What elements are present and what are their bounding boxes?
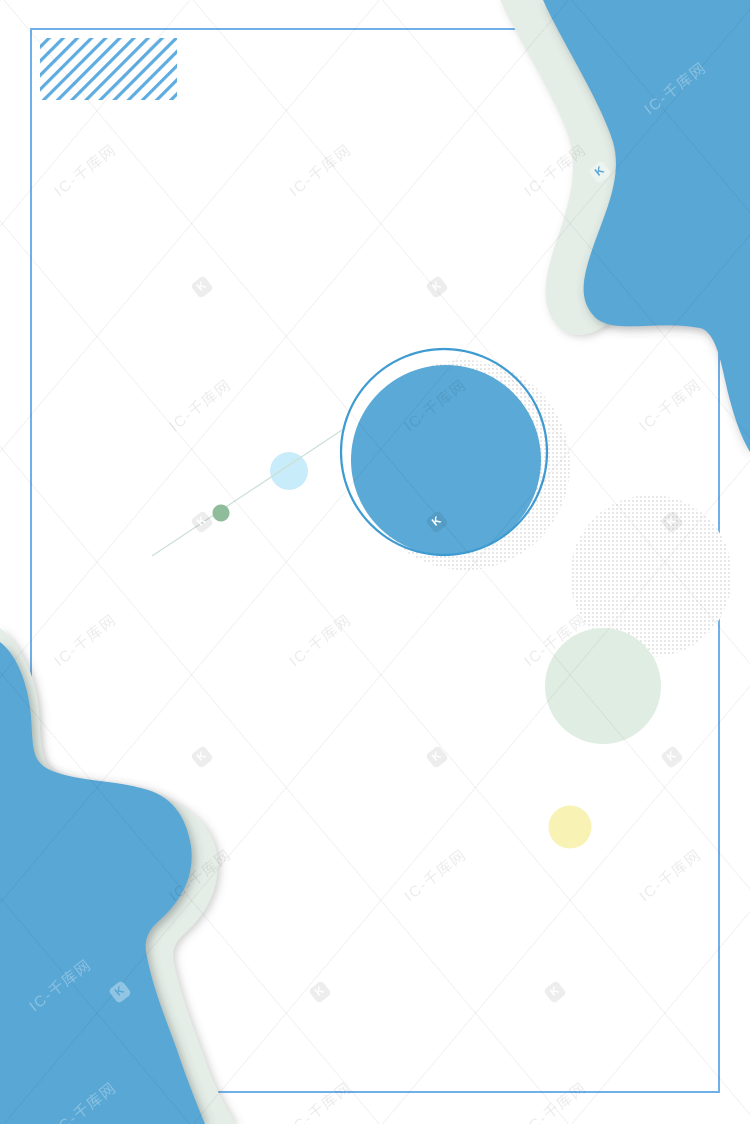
main-blue-circle: [351, 365, 541, 555]
yellow-circle: [549, 806, 592, 849]
hatch-rectangle: [40, 38, 177, 100]
bottom-left-blue-wave: [0, 642, 205, 1124]
green-dot: [213, 505, 230, 522]
sage-circle: [545, 628, 661, 744]
connector-line: [152, 430, 342, 556]
pale-blue-circle: [270, 452, 308, 490]
poster-artwork: [0, 0, 750, 1124]
poster-background: IC-千库网IC-千库网IC-千库网IC-千库网IC-千库网IC-千库网IC-千…: [0, 0, 750, 1124]
